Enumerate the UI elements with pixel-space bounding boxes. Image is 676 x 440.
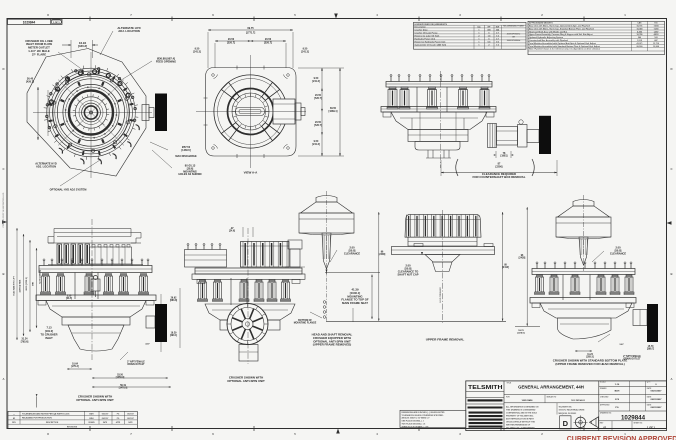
- svg-text:OR AS A WHOLE WITHOUT THE: OR AS A WHOLE WITHOUT THE: [506, 421, 536, 424]
- svg-text:SCALE: SCALE: [600, 380, 607, 383]
- svg-text:INLET: INLET: [45, 336, 53, 340]
- svg-text:℄ OF CRUSHER: ℄ OF CRUSHER: [439, 287, 442, 304]
- svg-text:16,701: 16,701: [637, 26, 644, 28]
- svg-text:UPPER FRAME REMOVAL: UPPER FRAME REMOVAL: [426, 338, 465, 342]
- svg-text:[1460.5]: [1460.5]: [181, 149, 190, 152]
- svg-text:460V/3PH/60Hz: 460V/3PH/60Hz: [507, 33, 521, 36]
- svg-text:[398.7]: [398.7]: [647, 349, 655, 351]
- svg-text:1029844: 1029844: [621, 415, 646, 422]
- svg-text:Crusher Oil Lube Pump: Crusher Oil Lube Pump: [415, 31, 439, 34]
- svg-text:26,500: 26,500: [637, 46, 643, 48]
- svg-text:Countershaft Box Assembly with: Countershaft Box Assembly with Flywheel: [529, 39, 568, 42]
- svg-text:26.92: 26.92: [171, 298, 177, 300]
- svg-text:TOLERANCES AND NOTES PER QA IN: TOLERANCES AND NOTES PER QA INSTR 10-001: [22, 412, 70, 415]
- svg-text:ADJ. LOCATION: ADJ. LOCATION: [118, 29, 140, 33]
- svg-text:SHEET NO.: SHEET NO.: [634, 422, 644, 424]
- svg-text:(UPPER FRAME REMOVED): (UPPER FRAME REMOVED): [313, 343, 351, 347]
- svg-text:MAX DISCHARGE: MAX DISCHARGE: [175, 155, 197, 158]
- svg-text:APPROXIMATE WEIGHTS: APPROXIMATE WEIGHTS: [529, 22, 553, 25]
- svg-text:A: A: [670, 377, 672, 381]
- svg-text:[1890.0] MAX: [1890.0] MAX: [19, 279, 22, 292]
- svg-text:HOLES AS SHOWN: HOLES AS SHOWN: [179, 173, 202, 176]
- svg-text:TO CRUSHER: TO CRUSHER: [40, 333, 57, 337]
- svg-text:[24.6]: [24.6]: [229, 230, 235, 233]
- svg-text:—: —: [13, 414, 15, 416]
- svg-text:GENERAL ARRANGEMENT, 44H: GENERAL ARRANGEMENT, 44H: [518, 385, 584, 390]
- svg-text:Optional Air Oil Cooler (440 V: Optional Air Oil Cooler (440 Volt): [415, 43, 447, 46]
- svg-text:OPTIONAL ANTI-SPIN UNIT: OPTIONAL ANTI-SPIN UNIT: [227, 379, 265, 383]
- svg-text:12,066: 12,066: [653, 46, 659, 48]
- svg-text:360: 360: [638, 37, 641, 39]
- svg-text:REVISIONS: REVISIONS: [67, 426, 78, 428]
- svg-text:Base Unit with Mains, Nut & Ca: Base Unit with Mains, Nut & Cap, Optiona…: [529, 25, 591, 28]
- svg-text:DRAWING NO.: DRAWING NO.: [600, 412, 612, 415]
- svg-text:09/21/2007: 09/21/2007: [651, 399, 663, 401]
- svg-text:DRAWN: DRAWN: [600, 387, 607, 390]
- svg-text:1 OF 1: 1 OF 1: [647, 426, 655, 430]
- svg-text:Total Machine Assembled with O: Total Machine Assembled with Optional An…: [529, 42, 596, 45]
- svg-text:Base Unit with Mains, Nut & Ca: Base Unit with Mains, Nut & Cap, Standar…: [529, 27, 594, 30]
- svg-text:Hydraulic Power Unit: Hydraulic Power Unit: [415, 37, 436, 40]
- svg-text:[520.7]: [520.7]: [264, 41, 272, 44]
- svg-text:TELSMITH: TELSMITH: [468, 385, 503, 391]
- svg-text:PRINTED COPY IS UNCONTROLLED: PRINTED COPY IS UNCONTROLLED: [3, 192, 5, 227]
- svg-text:74.41 MAX HYD LIFT: 74.41 MAX HYD LIFT: [13, 275, 16, 295]
- svg-text:PG: PG: [615, 407, 618, 409]
- svg-text:Heaters for Lube Oil Tank: Heaters for Lube Oil Tank: [415, 34, 441, 37]
- svg-text:B: B: [2, 272, 4, 276]
- svg-text:[241.3]: [241.3]: [312, 143, 320, 146]
- svg-text:TOLERANCES UNLESS OTHERWISE SP: TOLERANCES UNLESS OTHERWISE SPECIFIED:: [402, 414, 444, 417]
- svg-text:10910 N. INDUSTRIAL DRIVE: 10910 N. INDUSTRIAL DRIVE: [559, 409, 586, 412]
- svg-text:C: C: [2, 167, 4, 171]
- svg-text:Upper Frame Assembly, Concave: Upper Frame Assembly, Concave Ring & Hop…: [529, 33, 593, 36]
- svg-text:SHAFT NUT CAP: SHAFT NUT CAP: [398, 273, 419, 277]
- svg-text:7,280: 7,280: [654, 28, 659, 30]
- svg-text:ALL INFORMATION CONTAINED ON: ALL INFORMATION CONTAINED ON: [506, 405, 539, 408]
- svg-text:15.70: 15.70: [648, 346, 654, 348]
- svg-text:CHECKED: CHECKED: [600, 396, 609, 398]
- svg-text:WRITTEN PERMISSION OF: WRITTEN PERMISSION OF: [506, 425, 531, 427]
- svg-text:4,380: 4,380: [637, 30, 642, 33]
- svg-text:380V/3PH/50Hz: 380V/3PH/50Hz: [507, 40, 521, 42]
- svg-text:[2206]: [2206]: [496, 165, 503, 168]
- svg-text:MAIN FRAME SEAT: MAIN FRAME SEAT: [342, 301, 368, 305]
- svg-text:[474.9]: [474.9]: [518, 332, 525, 335]
- svg-text:20.50: 20.50: [228, 38, 235, 41]
- svg-text:A: A: [2, 377, 4, 381]
- svg-text:[793.6]: [793.6]: [21, 340, 29, 343]
- svg-text:[683.8]: [683.8]: [170, 300, 178, 302]
- svg-text:BDH: BDH: [615, 391, 620, 393]
- svg-text:D: D: [563, 419, 569, 428]
- svg-text:68.91 [1750.3]: 68.91 [1750.3]: [26, 277, 28, 290]
- svg-text:TELSMITH, INC. IS PROHIBITED: TELSMITH, INC. IS PROHIBITED: [506, 428, 535, 430]
- svg-text:[241.3]: [241.3]: [301, 50, 309, 53]
- svg-text:Optional Hydraulic Adjusting S: Optional Hydraulic Adjusting System: [529, 36, 563, 39]
- svg-text:BOTTOM OF: BOTTOM OF: [298, 320, 312, 322]
- svg-text:16,049: 16,049: [637, 27, 643, 30]
- svg-text:[63.5]: [63.5]: [66, 298, 72, 300]
- svg-text:KW: KW: [496, 26, 499, 28]
- svg-text:2.50: 2.50: [67, 296, 72, 298]
- svg-text:QTY:: QTY:: [647, 381, 651, 383]
- svg-text:[241.3]: [241.3]: [312, 80, 320, 83]
- svg-text:100123456: 100123456: [522, 399, 534, 402]
- svg-text:4,893: 4,893: [654, 33, 659, 36]
- svg-text:MEQUON, WI 53092: MEQUON, WI 53092: [559, 413, 577, 415]
- svg-text:19.29: 19.29: [171, 333, 177, 335]
- svg-text:[270.2]: [270.2]: [71, 366, 79, 368]
- svg-text:DRAIN OUTLET: DRAIN OUTLET: [127, 363, 145, 366]
- svg-text:VIEW A-A: VIEW A-A: [244, 171, 259, 175]
- svg-text:[490.1]: [490.1]: [170, 334, 178, 337]
- svg-text:RELEASED FOR PRODUCTION: RELEASED FOR PRODUCTION: [22, 417, 52, 420]
- svg-text:DIMENSIONS ARE IN INCHES [...]: DIMENSIONS ARE IN INCHES [...] UNLESS NO…: [402, 411, 446, 414]
- svg-text:D: D: [2, 67, 4, 71]
- svg-text:53.50: 53.50: [117, 375, 123, 377]
- svg-text:Total Machine Assembled with S: Total Machine Assembled with Standard Bo…: [529, 45, 600, 48]
- svg-text:FEED OPENING: FEED OPENING: [156, 59, 176, 63]
- svg-text:13,710: 13,710: [653, 43, 659, 45]
- svg-text:CLEARANCE: CLEARANCE: [610, 252, 627, 256]
- svg-text:CLEARANCE: CLEARANCE: [344, 252, 361, 256]
- svg-text:10.64: 10.64: [72, 363, 78, 366]
- svg-text:THIS DRAWING IS CONSIDERED: THIS DRAWING IS CONSIDERED: [506, 408, 536, 411]
- svg-text:41,071: 41,071: [637, 42, 644, 45]
- svg-text:37° FLARE: 37° FLARE: [32, 52, 46, 56]
- svg-text:CURRENT REVISION APPROVED: CURRENT REVISION APPROVED: [567, 436, 676, 440]
- svg-text:09/21/07: 09/21/07: [102, 418, 109, 420]
- svg-text:DESCRIPTION: DESCRIPTION: [46, 422, 59, 424]
- svg-text:[2413]: [2413]: [502, 266, 509, 269]
- svg-text:09/21/07: 09/21/07: [127, 414, 134, 416]
- svg-text:1,987: 1,987: [654, 31, 659, 33]
- svg-text:ANGLES: MACH ± 1/2° BEND ±: ANGLES: MACH ± 1/2° BEND ± 1°: [402, 417, 431, 420]
- svg-text:B: B: [670, 272, 672, 276]
- svg-text:Head and Shaft Assy with Mantl: Head and Shaft Assy with Mantle and Nut: [529, 30, 567, 33]
- svg-text:[520.7]: [520.7]: [314, 97, 322, 100]
- svg-text:ONE PLACE DECIMAL ± .1: ONE PLACE DECIMAL ± .1: [402, 420, 425, 423]
- svg-text:OPTIONAL ANTI-SPIN UNIT: OPTIONAL ANTI-SPIN UNIT: [76, 398, 114, 402]
- svg-text:Heater for Hydraulic Power Uni: Heater for Hydraulic Power Unit: [415, 40, 446, 43]
- svg-text:TWO PLACE DECIMAL ± .01: TWO PLACE DECIMAL ± .01: [402, 422, 426, 425]
- svg-text:(UPPER FRAME REMOVED FOR HEAD: (UPPER FRAME REMOVED FOR HEAD REMOVAL): [555, 362, 624, 366]
- svg-text:2" NPT FEMALE: 2" NPT FEMALE: [127, 361, 145, 364]
- svg-text:1:16: 1:16: [615, 384, 620, 386]
- svg-text:[426.7]: [426.7]: [26, 80, 34, 83]
- svg-text:[1771.7]: [1771.7]: [246, 32, 255, 35]
- svg-text:APPROVED: APPROVED: [600, 404, 610, 407]
- svg-text:10,786: 10,786: [637, 34, 643, 36]
- svg-text:BDH: BDH: [90, 414, 95, 416]
- svg-text:JCS: JCS: [615, 399, 620, 401]
- svg-text:Crusher Duty: Crusher Duty: [415, 28, 429, 31]
- svg-text:20.50: 20.50: [265, 38, 272, 41]
- svg-text:BDH: BDH: [90, 418, 95, 420]
- svg-text:58.19: 58.19: [120, 385, 126, 387]
- svg-text:[520.7]: [520.7]: [314, 124, 322, 127]
- svg-text:[2438]: [2438]: [519, 257, 526, 260]
- svg-text:1029844: 1029844: [23, 20, 36, 24]
- svg-text:[430.2]: [430.2]: [78, 44, 87, 48]
- svg-text:Description: Description: [415, 25, 427, 28]
- svg-text:Note: Flywheel shown is for re: Note: Flywheel shown is for reference on…: [529, 48, 601, 51]
- svg-text:687: 687: [654, 40, 657, 42]
- svg-text:[2438]: [2438]: [379, 253, 386, 256]
- svg-text:11.24: 11.24: [587, 353, 593, 356]
- svg-text:09/21/07: 09/21/07: [127, 418, 134, 420]
- svg-text:PROPERTY OF TELSMITH INC.: PROPERTY OF TELSMITH INC.: [506, 415, 534, 417]
- svg-text:ADJ. LOCATION: ADJ. LOCATION: [36, 165, 56, 169]
- svg-text:SIMILAR TO: SIMILAR TO: [547, 396, 557, 399]
- svg-text:09/21/2007: 09/21/2007: [651, 391, 663, 393]
- svg-text:C: C: [670, 167, 672, 171]
- svg-text:FOR COUNTERSHAFT BOX REMOVAL: FOR COUNTERSHAFT BOX REMOVAL: [473, 175, 526, 179]
- svg-text:[1689.1]: [1689.1]: [329, 110, 338, 113]
- svg-text:69.75: 69.75: [247, 27, 254, 30]
- svg-text:[1981]: [1981]: [501, 155, 508, 158]
- svg-text:CONFIDENTIAL AND IS THE SOLE: CONFIDENTIAL AND IS THE SOLE: [506, 411, 538, 414]
- svg-text:[181.0]: [181.0]: [45, 329, 53, 333]
- svg-text:ANY REPRODUCTION IN PART: ANY REPRODUCTION IN PART: [506, 418, 535, 421]
- svg-text:[241.3]: [241.3]: [193, 50, 201, 53]
- svg-text:163: 163: [654, 37, 657, 39]
- svg-text:MIN: MIN: [33, 282, 35, 286]
- svg-text:TELSMITH INC: TELSMITH INC: [559, 407, 573, 409]
- svg-text:09/21/2007: 09/21/2007: [651, 407, 663, 409]
- svg-text:KG: KG: [655, 23, 658, 25]
- svg-text:RECOMMENDED POWER: RECOMMENDED POWER: [503, 26, 524, 28]
- svg-text:1 OF 1: 1 OF 1: [53, 22, 60, 24]
- svg-text:7.13: 7.13: [46, 326, 52, 330]
- svg-text:THREE PLACE DECIMAL ± .005: THREE PLACE DECIMAL ± .005: [402, 425, 429, 428]
- svg-text:62.74 [1593.6]: 62.74 [1593.6]: [39, 270, 42, 284]
- svg-text:09/21/07: 09/21/07: [102, 414, 109, 416]
- svg-text:OPTIONAL HYD ADJ SYSTEM: OPTIONAL HYD ADJ SYSTEM: [50, 188, 87, 192]
- svg-text:D: D: [670, 67, 672, 71]
- svg-text:101-76134-01: 101-76134-01: [571, 399, 585, 402]
- svg-text:[520.7]: [520.7]: [227, 41, 235, 44]
- svg-text:MOUNTING FLANGE: MOUNTING FLANGE: [294, 322, 317, 325]
